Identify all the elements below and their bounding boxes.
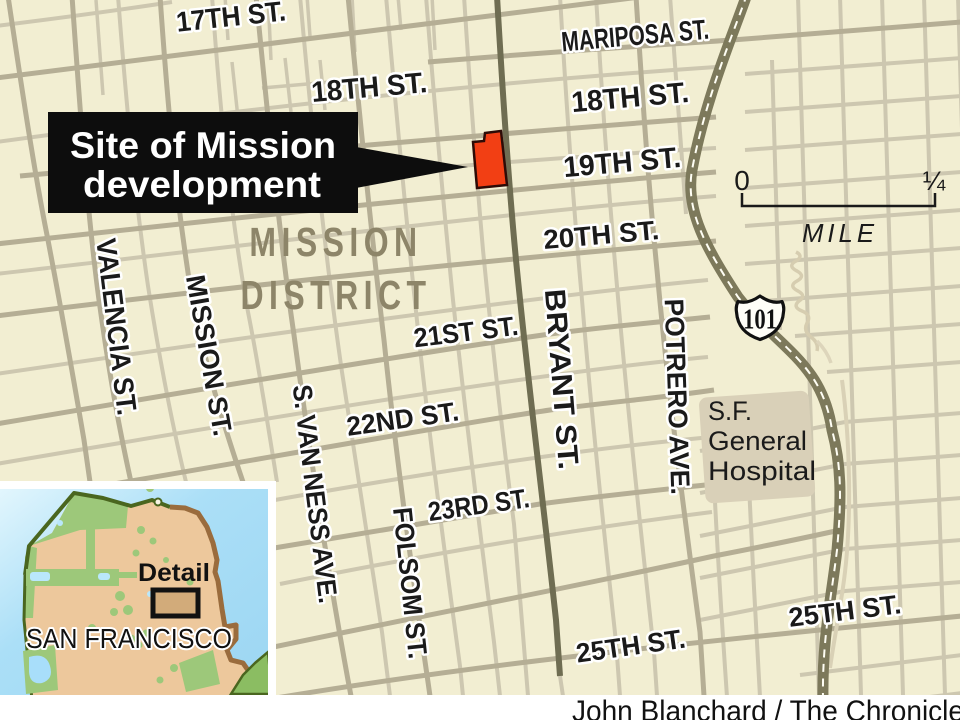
svg-text:Hospital: Hospital	[708, 456, 816, 486]
svg-text:development: development	[83, 164, 321, 205]
svg-text:MISSION: MISSION	[249, 219, 422, 265]
svg-text:SAN FRANCISCO: SAN FRANCISCO	[26, 623, 232, 654]
svg-text:John Blanchard / The Chronicle: John Blanchard / The Chronicle	[572, 695, 960, 720]
svg-text:0: 0	[734, 165, 750, 196]
svg-text:101: 101	[743, 304, 777, 336]
svg-text:MILE: MILE	[802, 218, 878, 248]
svg-text:S.F.: S.F.	[708, 396, 752, 426]
svg-text:Detail: Detail	[138, 559, 210, 587]
svg-text:Site of Mission: Site of Mission	[70, 125, 336, 166]
svg-text:DISTRICT: DISTRICT	[240, 272, 431, 318]
svg-text:General: General	[708, 426, 807, 456]
svg-text:¼: ¼	[923, 166, 946, 196]
